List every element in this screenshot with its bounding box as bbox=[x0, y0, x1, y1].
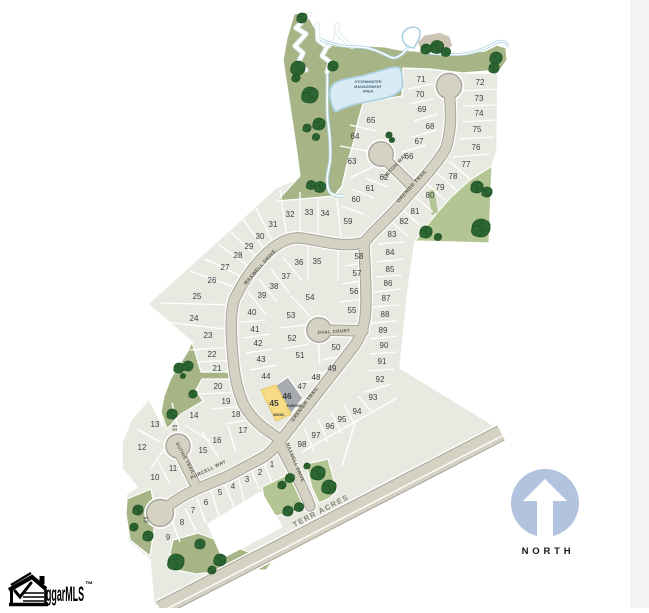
svg-text:84: 84 bbox=[386, 248, 395, 257]
svg-text:80: 80 bbox=[426, 191, 435, 200]
svg-text:26: 26 bbox=[208, 276, 217, 285]
svg-text:11: 11 bbox=[169, 464, 178, 473]
svg-text:85: 85 bbox=[386, 265, 395, 274]
svg-text:58: 58 bbox=[355, 252, 364, 261]
svg-text:60: 60 bbox=[352, 195, 361, 204]
svg-text:94: 94 bbox=[353, 407, 362, 416]
svg-text:67: 67 bbox=[415, 137, 424, 146]
svg-text:38: 38 bbox=[270, 282, 279, 291]
svg-text:72: 72 bbox=[476, 78, 485, 87]
svg-text:63: 63 bbox=[348, 157, 357, 166]
svg-text:22: 22 bbox=[208, 350, 217, 359]
svg-text:69: 69 bbox=[418, 105, 427, 114]
svg-text:52: 52 bbox=[288, 334, 297, 343]
svg-text:51: 51 bbox=[296, 351, 305, 360]
svg-text:49: 49 bbox=[328, 364, 337, 373]
svg-text:90: 90 bbox=[380, 341, 389, 350]
svg-text:30: 30 bbox=[256, 232, 265, 241]
svg-text:47: 47 bbox=[298, 382, 307, 391]
svg-text:23: 23 bbox=[204, 331, 213, 340]
svg-text:37: 37 bbox=[282, 272, 291, 281]
svg-text:6: 6 bbox=[204, 498, 209, 507]
svg-text:50: 50 bbox=[332, 343, 341, 352]
svg-text:3: 3 bbox=[245, 475, 250, 484]
svg-text:B0S: B0S bbox=[144, 520, 149, 523]
svg-text:31: 31 bbox=[269, 220, 278, 229]
svg-text:95: 95 bbox=[338, 415, 347, 424]
svg-text:9: 9 bbox=[166, 533, 171, 542]
svg-text:20: 20 bbox=[214, 382, 223, 391]
svg-text:24: 24 bbox=[190, 314, 199, 323]
svg-text:59: 59 bbox=[344, 217, 353, 226]
svg-text:27: 27 bbox=[221, 263, 230, 272]
svg-text:78: 78 bbox=[449, 172, 458, 181]
svg-text:48: 48 bbox=[312, 373, 321, 382]
svg-text:MANAGEMENT: MANAGEMENT bbox=[354, 85, 382, 89]
svg-text:82: 82 bbox=[400, 217, 409, 226]
svg-text:35: 35 bbox=[313, 257, 322, 266]
svg-text:33: 33 bbox=[305, 208, 314, 217]
svg-text:79: 79 bbox=[436, 183, 445, 192]
svg-text:77: 77 bbox=[462, 160, 471, 169]
svg-text:4: 4 bbox=[231, 482, 236, 491]
svg-text:B0S: B0S bbox=[173, 428, 178, 431]
svg-text:43: 43 bbox=[257, 355, 266, 364]
svg-text:91: 91 bbox=[378, 357, 387, 366]
svg-text:32: 32 bbox=[286, 210, 295, 219]
svg-text:97: 97 bbox=[312, 431, 321, 440]
svg-text:83: 83 bbox=[388, 230, 397, 239]
svg-text:88: 88 bbox=[381, 310, 390, 319]
svg-text:ggarMLS: ggarMLS bbox=[46, 583, 84, 606]
svg-text:93: 93 bbox=[369, 393, 378, 402]
svg-text:92: 92 bbox=[376, 375, 385, 384]
svg-text:12: 12 bbox=[138, 443, 147, 452]
svg-text:87: 87 bbox=[382, 294, 391, 303]
svg-text:14: 14 bbox=[190, 411, 199, 420]
svg-text:42: 42 bbox=[254, 339, 263, 348]
svg-text:76: 76 bbox=[472, 143, 481, 152]
svg-text:15: 15 bbox=[199, 446, 208, 455]
svg-text:61: 61 bbox=[366, 184, 375, 193]
svg-text:46: 46 bbox=[282, 391, 292, 401]
svg-text:73: 73 bbox=[475, 94, 484, 103]
svg-text:65: 65 bbox=[367, 116, 376, 125]
svg-text:16: 16 bbox=[213, 436, 222, 445]
svg-text:75: 75 bbox=[473, 125, 482, 134]
svg-text:44: 44 bbox=[262, 372, 271, 381]
svg-text:71: 71 bbox=[417, 75, 426, 84]
svg-text:21: 21 bbox=[213, 364, 222, 373]
svg-text:NORTH: NORTH bbox=[522, 546, 575, 557]
svg-text:™: ™ bbox=[85, 580, 93, 589]
svg-text:1: 1 bbox=[270, 460, 275, 469]
svg-text:55: 55 bbox=[348, 306, 357, 315]
svg-text:18: 18 bbox=[232, 410, 241, 419]
svg-text:96: 96 bbox=[326, 422, 335, 431]
svg-text:45: 45 bbox=[269, 398, 279, 408]
svg-text:41: 41 bbox=[251, 325, 260, 334]
svg-text:70: 70 bbox=[416, 90, 425, 99]
svg-text:STORMWATER: STORMWATER bbox=[354, 80, 381, 84]
svg-text:MODEL: MODEL bbox=[273, 413, 285, 417]
svg-text:68: 68 bbox=[426, 122, 435, 131]
svg-text:74: 74 bbox=[475, 109, 484, 118]
svg-text:57: 57 bbox=[353, 269, 362, 278]
svg-text:7: 7 bbox=[191, 506, 196, 515]
svg-text:56: 56 bbox=[350, 287, 359, 296]
svg-text:19: 19 bbox=[222, 397, 231, 406]
svg-text:29: 29 bbox=[245, 242, 254, 251]
svg-text:AREA: AREA bbox=[363, 90, 374, 94]
svg-text:36: 36 bbox=[295, 258, 304, 267]
svg-text:89: 89 bbox=[379, 326, 388, 335]
svg-text:34: 34 bbox=[321, 209, 330, 218]
svg-text:53: 53 bbox=[287, 311, 296, 320]
svg-text:98: 98 bbox=[298, 440, 307, 449]
svg-text:25: 25 bbox=[193, 292, 202, 301]
svg-text:5: 5 bbox=[218, 488, 223, 497]
svg-text:10: 10 bbox=[151, 473, 160, 482]
svg-text:17: 17 bbox=[239, 426, 248, 435]
svg-text:81: 81 bbox=[411, 207, 420, 216]
svg-text:28: 28 bbox=[234, 251, 243, 260]
svg-text:64: 64 bbox=[351, 132, 360, 141]
svg-text:86: 86 bbox=[384, 279, 393, 288]
svg-text:13: 13 bbox=[151, 420, 160, 429]
svg-text:54: 54 bbox=[306, 293, 315, 302]
svg-text:8: 8 bbox=[180, 518, 185, 527]
svg-text:39: 39 bbox=[258, 291, 267, 300]
svg-text:2: 2 bbox=[258, 468, 263, 477]
svg-text:40: 40 bbox=[248, 308, 257, 317]
